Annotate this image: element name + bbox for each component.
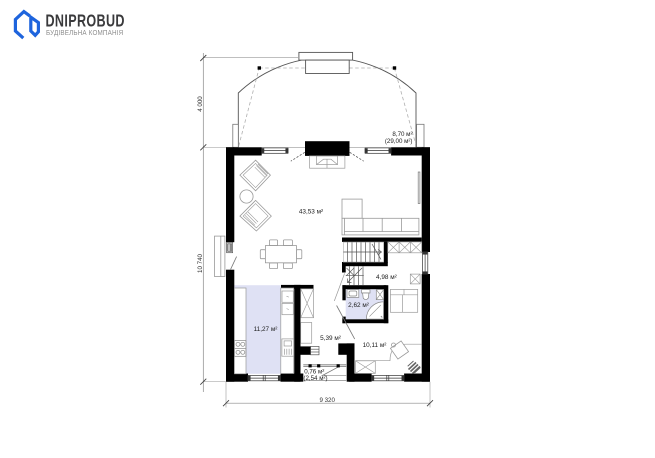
svg-text:4,98 м²: 4,98 м² bbox=[376, 274, 397, 281]
svg-text:43,53 м²: 43,53 м² bbox=[299, 208, 323, 215]
svg-text:DNIPROBUD: DNIPROBUD bbox=[46, 12, 125, 32]
svg-text:(29,00 м²): (29,00 м²) bbox=[385, 138, 413, 145]
svg-text:9 320: 9 320 bbox=[319, 397, 335, 404]
svg-text:5,39 м²: 5,39 м² bbox=[320, 335, 341, 342]
svg-text:2,62 м²: 2,62 м² bbox=[348, 302, 369, 309]
svg-text:БУДІВЕЛЬНА КОМПАНІЯ: БУДІВЕЛЬНА КОМПАНІЯ bbox=[46, 29, 123, 37]
svg-text:11,27 м²: 11,27 м² bbox=[254, 326, 278, 333]
svg-text:10,11 м²: 10,11 м² bbox=[363, 342, 387, 349]
svg-text:(2,54 м²): (2,54 м²) bbox=[303, 375, 327, 382]
svg-text:10 740: 10 740 bbox=[197, 253, 204, 272]
svg-text:8,70 м²: 8,70 м² bbox=[392, 131, 412, 138]
svg-text:4 000: 4 000 bbox=[197, 96, 204, 112]
